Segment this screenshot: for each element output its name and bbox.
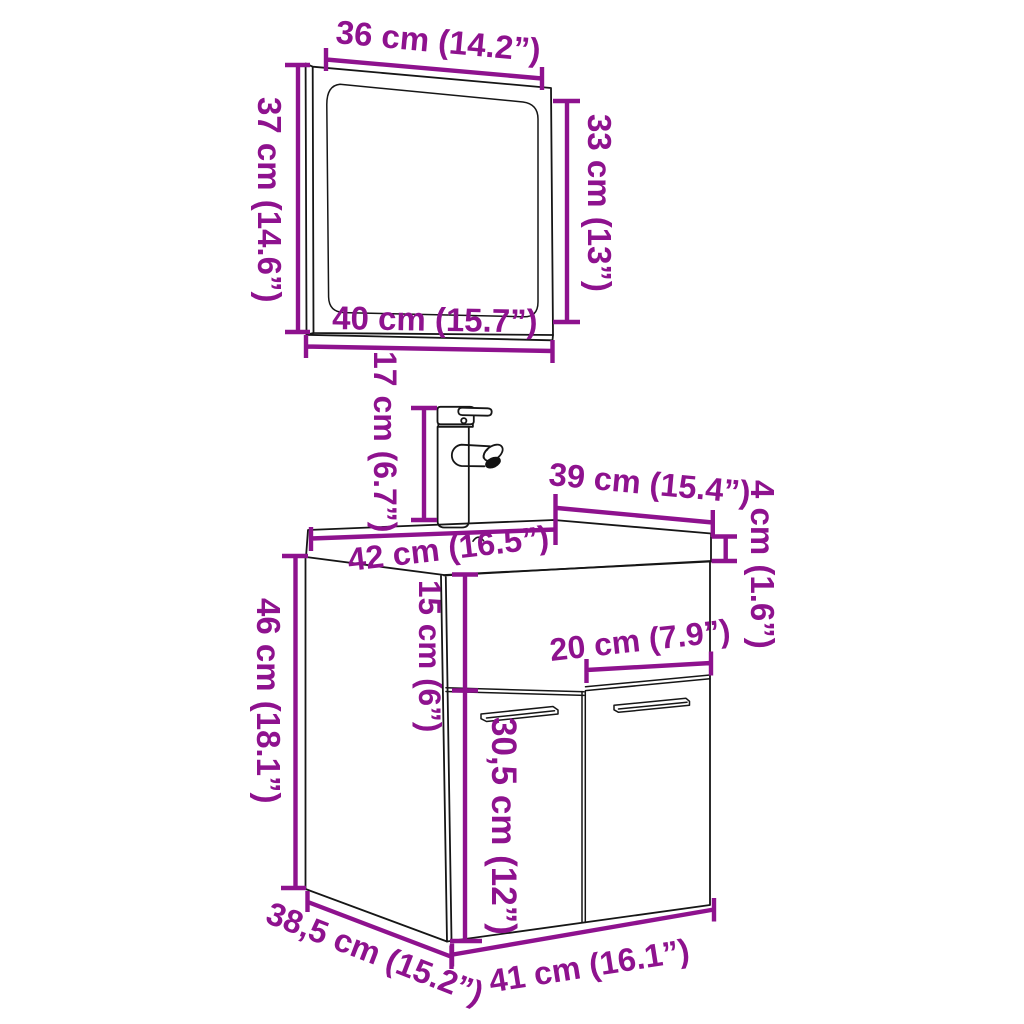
svg-text:37 cm (14.6”): 37 cm (14.6”) <box>251 97 288 302</box>
svg-text:46 cm (18.1”): 46 cm (18.1”) <box>250 598 287 803</box>
svg-text:4 cm (1.6”): 4 cm (1.6”) <box>744 480 781 649</box>
svg-text:17 cm (6.7”): 17 cm (6.7”) <box>367 351 403 532</box>
svg-text:30,5 cm (12”): 30,5 cm (12”) <box>484 717 523 935</box>
svg-text:33 cm (13”): 33 cm (13”) <box>581 114 618 292</box>
svg-text:40 cm (15.7”): 40 cm (15.7”) <box>332 299 538 340</box>
svg-text:15 cm (6”): 15 cm (6”) <box>412 580 448 732</box>
